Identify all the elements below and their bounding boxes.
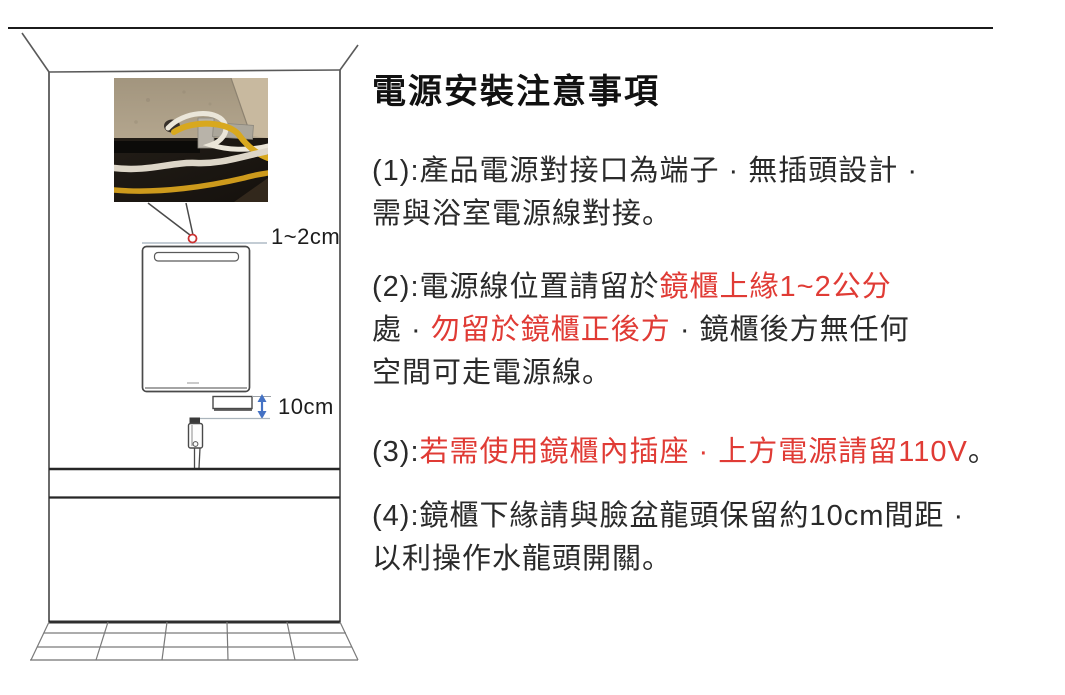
body-text: 空間可走電源線。 xyxy=(372,357,612,389)
gap-dimension-label: 1~2cm xyxy=(271,224,340,250)
paragraph-1: (1):產品電源對接口為端子 · 無插頭設計 ·需與浴室電源線對接。 xyxy=(372,150,918,236)
text-line: 以利操作水龍頭開關。 xyxy=(372,538,964,581)
text-line: 空間可走電源線。 xyxy=(372,352,910,395)
paragraph-4: (4):鏡櫃下緣請與臉盆龍頭保留約10cm間距 ·以利操作水龍頭開關。 xyxy=(372,495,964,581)
wire-entry-marker xyxy=(189,235,197,243)
body-text: 以利操作水龍頭開關。 xyxy=(372,543,672,575)
text-line: 處 · 勿留於鏡櫃正後方 · 鏡櫃後方無任何 xyxy=(372,309,910,352)
body-text: 處 · xyxy=(372,314,431,346)
body-text: (2):電源線位置請留於 xyxy=(372,271,660,303)
highlighted-text: 鏡櫃上緣1~2公分 xyxy=(660,271,892,303)
body-text: (1):產品電源對接口為端子 · 無插頭設計 · xyxy=(372,155,918,187)
body-text: · 鏡櫃後方無任何 xyxy=(671,314,910,346)
body-text: 。 xyxy=(968,436,998,468)
wiring-photo xyxy=(114,78,268,202)
body-text: (3): xyxy=(372,436,420,468)
body-text: 需與浴室電源線對接。 xyxy=(372,198,672,230)
dimension-arrow xyxy=(258,394,267,419)
instruction-paragraphs: (1):產品電源對接口為端子 · 無插頭設計 ·需與浴室電源線對接。(2):電源… xyxy=(372,0,1032,695)
installation-diagram: 1~2cm 10cm xyxy=(0,0,370,695)
paragraph-2: (2):電源線位置請留於鏡櫃上緣1~2公分處 · 勿留於鏡櫃正後方 · 鏡櫃後方… xyxy=(372,266,910,395)
manual-page: 1~2cm 10cm 電源安裝注意事項 (1):產品電源對接口為端子 · 無插頭… xyxy=(0,0,1065,695)
text-line: (3):若需使用鏡櫃內插座 · 上方電源請留110V。 xyxy=(372,431,998,474)
body-text: (4):鏡櫃下緣請與臉盆龍頭保留約10cm間距 · xyxy=(372,500,964,532)
highlighted-text: 勿留於鏡櫃正後方 xyxy=(431,314,671,346)
paragraph-3: (3):若需使用鏡櫃內插座 · 上方電源請留110V。 xyxy=(372,431,998,474)
text-line: (2):電源線位置請留於鏡櫃上緣1~2公分 xyxy=(372,266,910,309)
highlighted-text: 若需使用鏡櫃內插座 · 上方電源請留110V xyxy=(420,436,968,468)
text-line: (4):鏡櫃下緣請與臉盆龍頭保留約10cm間距 · xyxy=(372,495,964,538)
text-line: (1):產品電源對接口為端子 · 無插頭設計 · xyxy=(372,150,918,193)
text-line: 需與浴室電源線對接。 xyxy=(372,193,918,236)
distance-dimension-label: 10cm xyxy=(278,394,334,420)
